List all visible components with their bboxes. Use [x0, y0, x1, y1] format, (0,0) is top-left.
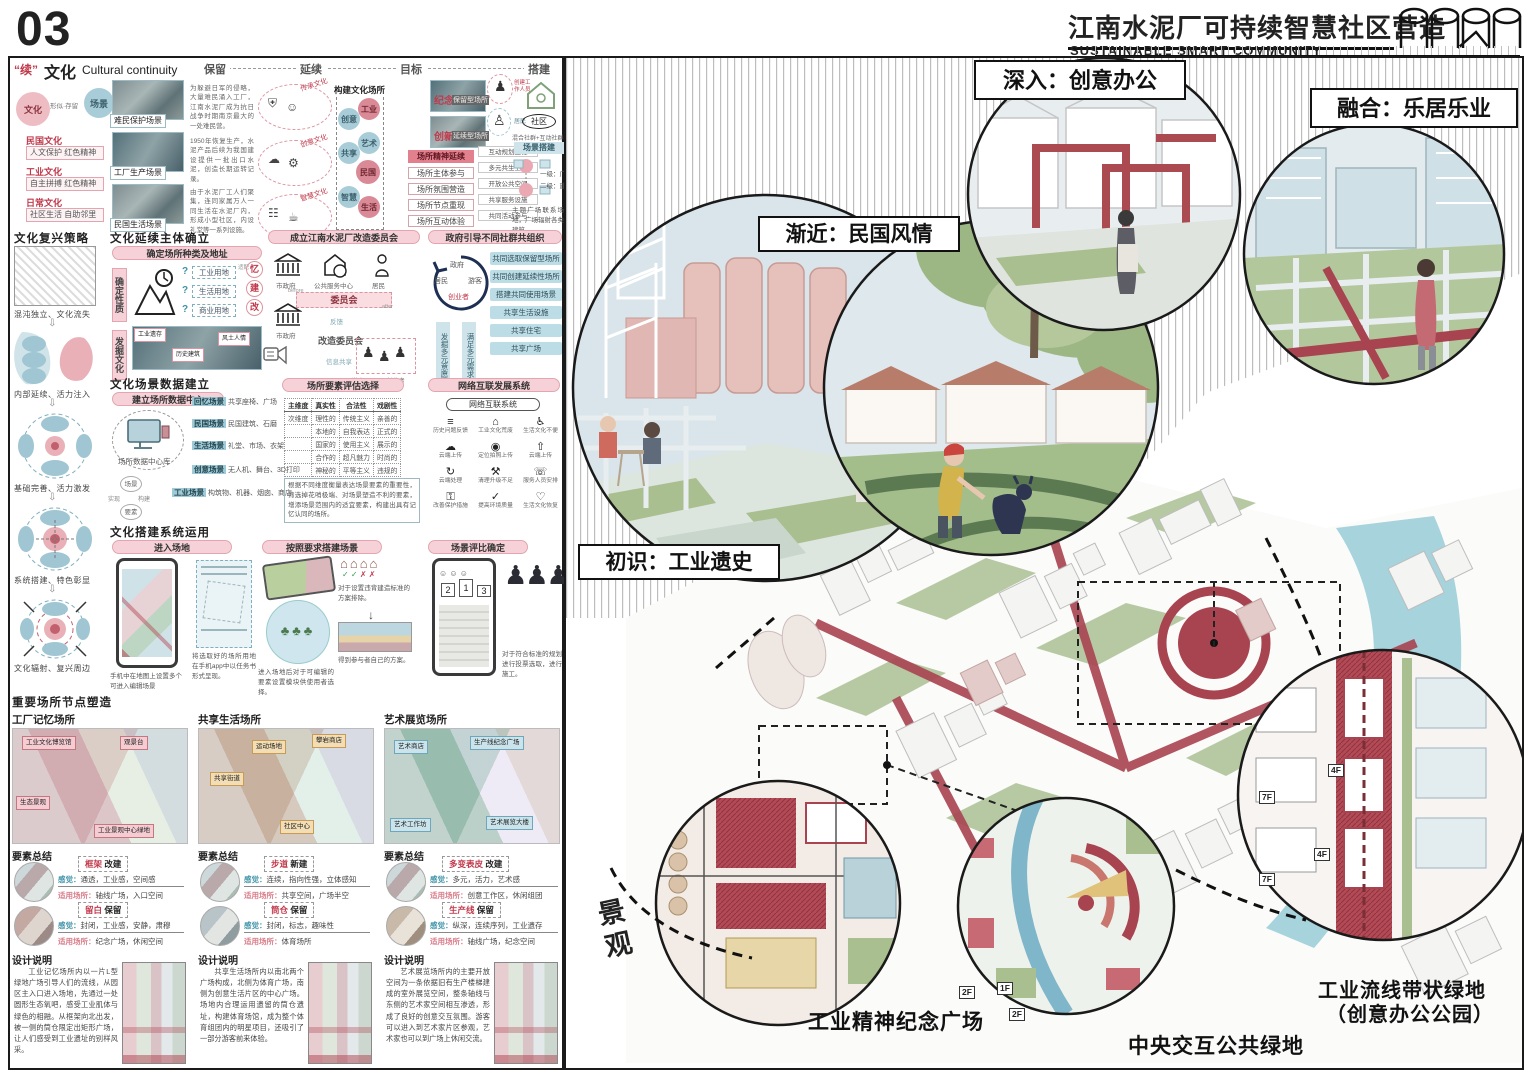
- innovate-tag: 创新: [434, 128, 454, 143]
- net-item-10: ⚿改善保护措施: [428, 491, 473, 516]
- photo-factory-label: 工厂生产场景: [110, 166, 166, 180]
- eval-r3c2: 时尚的: [373, 451, 400, 464]
- scene-tag-4: 创意场景: [192, 465, 226, 474]
- place-circle-art: 艺术: [358, 132, 380, 154]
- cloud-process-icon: ↻: [428, 466, 473, 478]
- place-circle-minguo: 民国: [356, 160, 380, 184]
- eval-r4c0: 神秘的: [312, 464, 339, 477]
- share-label: 信息共享: [326, 356, 352, 366]
- subject-v1: 确定性质: [112, 268, 127, 322]
- eval-h3: 戏剧性: [373, 399, 400, 412]
- place-circle-smart: 智慧: [338, 186, 360, 208]
- datacenter-label: 场所数据中心库: [118, 456, 171, 467]
- eval-sub: 次维度: [285, 412, 312, 425]
- buildsys-pill-2: 按照要求搭建场景: [262, 540, 382, 554]
- use-val: 轴线广场，入口空间: [96, 891, 164, 900]
- col3-rowB-feel: 感觉：纵深，连续序列，工业遗存: [430, 920, 558, 933]
- col1-title: 工厂记忆场所: [12, 712, 75, 727]
- photo-factory-note: 1950年恢复生产，水泥产品后续为我国建设提供一批出口水泥，创造长期运转记录。: [190, 137, 254, 184]
- org-box-4: 共享生活设施: [490, 306, 562, 319]
- dig-label-2: 历史建筑: [172, 348, 204, 362]
- net-item-4-label: 云端上传: [428, 453, 473, 459]
- committee-pill: 成立江南水泥厂改造委员会: [268, 230, 420, 244]
- scene-val-5: 构筑物、机器、烟囱、商店: [208, 490, 292, 497]
- community-house-icon: [524, 78, 558, 110]
- label-linear-green-2: （创意办公公园）: [1326, 998, 1494, 1027]
- lock-icon: ⚿: [428, 491, 473, 503]
- buildsys-cap-5: 得到参与者自己的方案。: [338, 656, 412, 666]
- net-item-11: ✓提高环境质量: [473, 491, 518, 516]
- house-options-icons: ⌂⌂⌂⌂: [340, 556, 379, 571]
- buildsys-cap-6: 对于符合标准的规划进行投票选取，进行施工。: [502, 650, 562, 679]
- land-q-1: ?: [182, 266, 188, 277]
- heart-icon: ♡: [518, 491, 563, 503]
- net-item-6-label: 云端上传: [518, 453, 563, 459]
- group-person-icon-1: ♟: [362, 344, 375, 361]
- nodes-title: 重要场所节点塑造: [12, 694, 112, 710]
- net-item-2: ⌂工业文化荒废: [473, 416, 518, 441]
- revive-title: 文化复兴策略: [14, 230, 89, 246]
- scene-build-title: 场景搭建: [514, 142, 564, 154]
- eval-r0c1: 传统主义: [339, 412, 373, 425]
- section1-title: 文化: [44, 59, 76, 83]
- megaphone-icon: [262, 344, 288, 366]
- net-pill: 网络互联发展系统: [428, 378, 560, 392]
- col1-label-4: 工业景观中心绿地: [94, 824, 154, 838]
- upload-arrow-icon: ⇧: [518, 441, 563, 453]
- factory-icon: ⌂: [473, 416, 518, 428]
- innovate-text: 延续型场所: [452, 131, 489, 141]
- col1-design-title: 设计说明: [12, 952, 52, 967]
- buildsys-cap-1: 手机中在地图上设置多个可进入编辑场景: [110, 672, 182, 692]
- culture-link-label: 形似·存留: [50, 100, 78, 110]
- use-key: 适用场所：: [244, 937, 282, 946]
- scene-tag-2: 民国场景: [192, 419, 226, 428]
- org-box-6: 共享广场: [490, 342, 562, 355]
- down-arrow-icon-5: ↓: [368, 608, 374, 622]
- subject-pill: 确定场所种类及地址: [112, 246, 262, 260]
- presentation-board: 03 江南水泥厂可持续智慧社区营造 SUSTAINABLE SMART COMM…: [0, 0, 1531, 1077]
- land-2: 生活用地: [192, 285, 236, 298]
- scene-item-3: 生活场景 礼堂、市场、衣架: [192, 440, 284, 451]
- col1-plan-thumb: [122, 962, 186, 1064]
- net-item-3-label: 生活文化不便: [518, 428, 563, 434]
- down-arrow-icon-1: ⇩: [48, 318, 56, 329]
- section1-subtitle: Cultural continuity: [82, 63, 177, 77]
- use-val: 创意工作区，休闲组团: [468, 891, 543, 900]
- floor-tag-3: 4F: [1314, 848, 1330, 861]
- col1-label-2: 观景台: [120, 736, 148, 750]
- buildsys-cap-2: 将选取好的场所用地在手机app中以任务书形式呈现。: [192, 652, 256, 681]
- photo-refugee-note: 为躲避日军的侵略，大量难民涌入工厂，江南水泥厂成为抗日战争时期南京最大的一处难民…: [190, 84, 254, 131]
- col2-rowB-use: 适用场所：体育场所: [244, 936, 370, 948]
- place-circle-creative: 创意: [338, 108, 360, 130]
- rank-3: 3: [477, 585, 491, 597]
- col2-label-1: 运动场地: [252, 740, 286, 754]
- floor-tag-5: 2F: [959, 986, 975, 999]
- resident-icon: [374, 254, 390, 278]
- wheelchair-icon: ♿: [518, 416, 563, 428]
- phone-map-screen: [122, 569, 172, 657]
- net-item-8-label: 清理升级不足: [473, 478, 518, 484]
- land-q-2: ?: [182, 285, 188, 296]
- resident-person-icon: ♙: [493, 112, 506, 129]
- land-3: 商业用地: [192, 304, 236, 317]
- col3-plan-thumb: [494, 962, 558, 1064]
- check-cross-row: ✓ ✓ ✗ ✗: [342, 570, 376, 579]
- chain-2: 场所氛围营造: [408, 183, 474, 195]
- use-val: 体育场所: [282, 937, 312, 946]
- editable-elements-circle: ♣♣♣: [266, 600, 330, 664]
- bubble-construct: 构建: [138, 494, 150, 503]
- callout-living-working: 融合：乐居乐业: [1310, 88, 1518, 128]
- chain-1: 场所主体参与: [408, 167, 474, 179]
- col2-rowB-badge: 筒仓 保留: [264, 902, 314, 918]
- use-val: 轴线广场，纪念空间: [468, 937, 536, 946]
- vote-plan-thumb: [439, 605, 489, 667]
- net-item-1-label: 历史问题反馈: [428, 428, 473, 434]
- place-circle-share: 共享: [338, 142, 360, 164]
- col3-label-3: 艺术工作坊: [390, 818, 431, 832]
- machine-icon: ⚙: [288, 156, 299, 170]
- label-central-green: 中央交互公共绿地: [1128, 1030, 1304, 1060]
- monitor-icon: [126, 418, 170, 452]
- org-box-3: 搭建共同使用场景: [490, 288, 562, 301]
- org-pill: 政府引导不同社群共组织: [428, 230, 562, 244]
- net-item-11-label: 提高环境质量: [473, 503, 518, 509]
- eval-r2c2: 展示的: [373, 438, 400, 451]
- place-circle-life: 生活: [358, 196, 380, 218]
- rank-1: 1: [459, 579, 473, 597]
- chain-3: 场所节点重现: [408, 199, 474, 211]
- feel-val: 纵深，连续序列，工业遗存: [453, 921, 543, 930]
- col2-rowA-use: 适用场所：共享空间，广场半空: [244, 890, 370, 902]
- culture-type-1-items: 人文保护 红色精神: [26, 146, 104, 160]
- badge-action: 改建: [104, 859, 121, 869]
- feel-key: 感觉：: [430, 921, 453, 930]
- org-box-5: 共享住宅: [490, 324, 562, 337]
- eval-r4c2: 违规的: [373, 464, 400, 477]
- badge-action: 保留: [104, 905, 121, 915]
- revive-diagram-4: [14, 506, 96, 572]
- data-title: 文化场景数据建立: [110, 376, 210, 392]
- net-item-3: ♿生活文化不便: [518, 416, 563, 441]
- col3-rowB-thumb: [386, 906, 426, 946]
- robot-icon: ☷: [268, 206, 279, 220]
- culture-type-3-items: 社区生活 自助邻里: [26, 208, 104, 222]
- spirit-box: 场所精神延续: [408, 150, 474, 163]
- idea-icon: ☁: [268, 152, 280, 166]
- stage-continue: 延续: [296, 61, 326, 77]
- label-memorial-plaza: 工业精神纪念广场: [808, 1006, 984, 1036]
- chain-4: 场所互动体验: [408, 215, 474, 227]
- eval-r2c0: 国家的: [312, 438, 339, 451]
- scene-val-3: 礼堂、市场、衣架: [228, 443, 284, 450]
- org-entrepreneur: 创业者: [448, 292, 469, 302]
- scene-val-2: 民国建筑、石磨: [228, 421, 277, 428]
- shield-icon: ⛨: [268, 96, 277, 111]
- org-box-1: 共同选取保留型场所: [490, 252, 562, 265]
- scene-item-1: 回忆场景 共享座椅、广场: [192, 396, 277, 407]
- buildsys-pill-1: 进入场地: [112, 540, 232, 554]
- build-places-title: 构建文化场所: [332, 84, 387, 96]
- net-grid: ≡历史问题反馈 ⌂工业文化荒废 ♿生活文化不便 ☁云端上传 ◉定位拍照上传 ⇧云…: [428, 416, 564, 516]
- revive-diagram-3: [14, 412, 96, 480]
- org-tourist: 游客: [468, 276, 482, 286]
- use-key: 适用场所：: [430, 891, 468, 900]
- net-item-12-label: 生活文化恢复: [518, 503, 563, 509]
- committee-resident-label: 居民: [372, 280, 385, 290]
- feel-key: 感觉：: [244, 875, 267, 884]
- feel-val: 连续，指向性强，立体感知: [267, 875, 357, 884]
- culture-type-2-items: 自主拼搏 红色精神: [26, 177, 104, 191]
- land-r-3: 改: [246, 299, 263, 316]
- council-box: 委员会: [296, 292, 392, 308]
- col1-rowB-use: 适用场所：纪念广场，休闲空间: [58, 936, 184, 948]
- col2-rowB-feel: 感觉：封闭，标志，趣味性: [244, 920, 370, 933]
- col3-rowA-feel: 感觉：多元，活力，艺术感: [430, 874, 558, 887]
- col3-label-4: 艺术展览大楼: [486, 816, 533, 830]
- badge-keyword: 框架: [85, 859, 102, 869]
- feel-val: 封闭，工业感，安静，肃穆: [81, 921, 171, 930]
- col1-design-text: 工业记忆场所内以一片L型绿地广场引导人们的流线，从园区主入口进入场地，先通过一处…: [14, 966, 118, 1055]
- org-gov: 政府: [450, 260, 464, 270]
- callout-minguo-flavor: 渐近：民国风情: [758, 216, 960, 252]
- bubble-element: 要素: [120, 504, 142, 520]
- col1-label-3: 生态景观: [16, 796, 50, 810]
- col1-rowA-badge: 框架 改建: [78, 856, 128, 872]
- col2-design-text: 共享生活场所内以南北两个广场构成，北侧为体育广场，南侧为创意生活片区的中心广场。…: [200, 966, 304, 1044]
- street-scene-thumb: [338, 622, 412, 652]
- badge-keyword: 生产线: [449, 905, 475, 915]
- use-key: 适用场所：: [430, 937, 468, 946]
- scene-val-1: 共享座椅、广场: [228, 399, 277, 406]
- net-box: 网络互联系统: [446, 398, 540, 411]
- history-list-icon: ≡: [428, 416, 473, 428]
- stage-keep: 保留: [200, 61, 230, 77]
- feel-key: 感觉：: [58, 921, 81, 930]
- community-oval: 社区: [522, 114, 556, 129]
- service-center-label: 公共服务中心: [314, 280, 353, 290]
- worker-icon: ☺: [286, 100, 298, 114]
- eval-r1c2: 正式的: [373, 425, 400, 438]
- culture-node: 文化: [16, 92, 50, 126]
- shovel-icon: ⚒: [473, 466, 518, 478]
- revive-step-5: 文化辐射、复兴周边: [14, 663, 91, 674]
- eval-caption: 根据不同维度衡量表达场景要素的重要性，筛选掉花哨极端、对场景塑造不利的要素，增添…: [284, 478, 420, 523]
- down-arrow-icon-4: ⇩: [48, 584, 56, 595]
- group-person-icon-3: ♟: [394, 344, 407, 361]
- cement-silos-logo-icon: [1398, 6, 1522, 50]
- scene-tag-3: 生活场景: [192, 441, 226, 450]
- net-item-7-label: 云端处理: [428, 478, 473, 484]
- eval-r1c1: 自我表达: [339, 425, 373, 438]
- net-item-7: ↻云端处理: [428, 466, 473, 491]
- after-label: after: [382, 304, 393, 310]
- revive-diagram-1: [14, 246, 96, 306]
- net-item-5: ◉定位拍照上传: [473, 441, 518, 466]
- net-item-9-label: 服务人员安排: [518, 478, 563, 484]
- badge-action: 保留: [477, 905, 494, 915]
- net-item-5-label: 定位拍照上传: [473, 453, 518, 459]
- memory-text: 保留型场所: [452, 95, 489, 105]
- col2-label-2: 攀岩商店: [312, 734, 346, 748]
- group-person-icon-2: ♟: [378, 348, 391, 365]
- badge-keyword: 筒仓: [271, 905, 288, 915]
- feedback-label: 反馈: [330, 316, 343, 326]
- bubble-realize: 实现: [108, 494, 120, 503]
- revive-diagram-2: [14, 330, 96, 386]
- bubble-scene: 场景: [120, 476, 142, 492]
- use-key: 适用场所：: [244, 891, 282, 900]
- eval-r0c0: 理性的: [312, 412, 339, 425]
- net-item-8: ⚒清理升级不足: [473, 466, 518, 491]
- buildsys-cap-3: 进入场地后对于可编辑的要素设置模块供使用者选择。: [258, 668, 334, 697]
- eval-h1: 真实性: [312, 399, 339, 412]
- col2-design-title: 设计说明: [198, 952, 238, 967]
- feel-key: 感觉：: [430, 875, 453, 884]
- col2-plan-thumb: [308, 962, 372, 1064]
- net-item-1: ≡历史问题反馈: [428, 416, 473, 441]
- dig-label-3: 风土人情: [218, 332, 250, 346]
- land-r-1: 忆: [246, 261, 263, 278]
- land-r-2: 建: [246, 280, 263, 297]
- stage-build: 搭建: [524, 61, 554, 77]
- col3-rowA-use: 适用场所：创意工作区，休闲组团: [430, 890, 558, 902]
- badge-keyword: 留白: [85, 905, 102, 915]
- eval-table: 主维度 真实性 合法性 戏剧性 次维度 理性的 传统主义 亲善的 本地的 自我表…: [284, 398, 401, 477]
- use-key: 适用场所：: [58, 937, 96, 946]
- stage-goal: 目标: [396, 61, 426, 77]
- headset-icon: ☏: [518, 466, 563, 478]
- section1-tag: “续”: [14, 61, 38, 78]
- net-item-9: ☏服务人员安排: [518, 466, 563, 491]
- net-item-6: ⇧云端上传: [518, 441, 563, 466]
- use-key: 适用场所：: [58, 891, 96, 900]
- rank-2: 2: [441, 583, 455, 597]
- buildsys-pill-3: 场景评比确定: [428, 540, 528, 554]
- memory-tag: 纪念: [434, 92, 454, 107]
- subject-v2: 发掘文化: [112, 330, 127, 380]
- phone-vote: ☺ ☺ ☺ 2 1 3: [432, 558, 496, 676]
- floor-tag-1: 4F: [1328, 764, 1344, 777]
- photo-life-note: 由于水泥厂工人们聚集，连同家属万人一同生活在水泥厂内，形成小型社区，内设礼堂等一…: [190, 188, 254, 235]
- col2-label-4: 社区中心: [280, 820, 314, 834]
- photo-refugee-label: 难民保护场景: [110, 114, 166, 128]
- col3-title: 艺术展览场所: [384, 712, 447, 727]
- badge-action: 保留: [290, 905, 307, 915]
- before-label: before: [288, 288, 304, 294]
- down-arrow-icon-2: ⇩: [48, 398, 56, 409]
- staff-person-icon: ♟: [494, 78, 507, 95]
- subject-title: 文化延续主体确立: [110, 230, 210, 246]
- dig-label-1: 工业遗存: [134, 328, 166, 342]
- col1-rowB-feel: 感觉：封闭，工业感，安静，肃穆: [58, 920, 184, 933]
- col3-summary-title: 要素总结: [384, 848, 424, 863]
- revive-diagram-5: [14, 598, 96, 660]
- gov-label-2: 市政府: [276, 330, 296, 340]
- floor-tag-6: 1F: [997, 982, 1013, 995]
- badge-keyword: 多变表皮: [449, 859, 483, 869]
- col1-summary-title: 要素总结: [12, 848, 52, 863]
- scene-item-5: 工业场景 构筑物、机器、烟囱、商店: [172, 487, 292, 498]
- badge-keyword: 步道: [271, 859, 288, 869]
- feel-val: 多元，活力，艺术感: [453, 875, 521, 884]
- scene-tag-1: 回忆场景: [192, 397, 226, 406]
- buildsys-cap-4: 对于设置违背建造标准的方案排除。: [338, 584, 410, 604]
- col2-rowB-thumb: [200, 906, 240, 946]
- col1-rowB-thumb: [14, 906, 54, 946]
- use-val: 共享空间，广场半空: [282, 891, 350, 900]
- eval-r1c0: 本地的: [312, 425, 339, 438]
- feel-key: 感觉：: [58, 875, 81, 884]
- callout-creative-office: 深入：创意办公: [974, 60, 1186, 100]
- col3-label-2: 生产线纪念广场: [470, 736, 524, 750]
- page-number: 03: [16, 2, 71, 57]
- eval-r2c1: 使用主义: [339, 438, 373, 451]
- cloud-upload-icon: ☁: [428, 441, 473, 453]
- quality-icon: ✓: [473, 491, 518, 503]
- eval-h2: 合法性: [339, 399, 373, 412]
- community-caption: 混合社群+互动社群: [512, 133, 564, 142]
- eval-r3c1: 超凡魅力: [339, 451, 373, 464]
- eval-r3c0: 合作的: [312, 451, 339, 464]
- net-item-4: ☁云端上传: [428, 441, 473, 466]
- gov-bank-icon-2: [274, 302, 302, 328]
- org-resident: 居民: [434, 276, 448, 286]
- scene-item-2: 民国场景 民国建筑、石磨: [192, 418, 277, 429]
- net-item-12: ♡生活文化恢复: [518, 491, 563, 516]
- service-center-icon: [322, 253, 348, 278]
- net-item-10-label: 改善保护措施: [428, 503, 473, 509]
- col2-title: 共享生活场所: [198, 712, 261, 727]
- col1-rowB-badge: 留白 保留: [78, 902, 128, 918]
- col1-label-1: 工业文化博览馆: [22, 736, 76, 750]
- col3-label-1: 艺术商店: [394, 740, 428, 754]
- stage-connector: [218, 68, 536, 69]
- feel-key: 感觉：: [244, 921, 267, 930]
- land-1: 工业用地: [192, 266, 236, 279]
- eval-pill: 场所要素评估选择: [282, 378, 404, 392]
- vote-faces: ☺ ☺ ☺: [439, 569, 468, 578]
- gov-bank-icon: [274, 252, 302, 278]
- floor-tag-4: 7F: [1259, 873, 1275, 886]
- col1-rowA-use: 适用场所：轴线广场，入口空间: [58, 890, 184, 902]
- feel-val: 封闭，标志，趣味性: [267, 921, 335, 930]
- col3-rowB-badge: 生产线 保留: [442, 902, 501, 918]
- col3-rowB-use: 适用场所：轴线广场，纪念空间: [430, 936, 558, 948]
- scene-tag-5: 工业场景: [172, 488, 206, 497]
- eval-r4c1: 平等主义: [339, 464, 373, 477]
- col2-rowA-feel: 感觉：连续，指向性强，立体感知: [244, 874, 370, 887]
- col1-rowA-thumb: [14, 862, 54, 902]
- col2-rowA-badge: 步道 新建: [264, 856, 314, 872]
- col3-design-text: 艺术展览场所内的主要开放空间为一条依据旧有生产楼梯建成的室外展览空间，整条轴线与…: [386, 966, 490, 1044]
- col2-summary-title: 要素总结: [198, 848, 238, 863]
- coffee-icon: ☕: [288, 210, 299, 224]
- use-val: 纪念广场，休闲空间: [96, 937, 164, 946]
- col3-rowA-badge: 多变表皮 改建: [442, 856, 509, 872]
- buildsys-title: 文化搭建系统运用: [110, 524, 210, 540]
- col1-rowA-feel: 感觉：通透，工业感，空间感: [58, 874, 184, 887]
- eval-r0c2: 亲善的: [373, 412, 400, 425]
- net-item-2-label: 工业文化荒废: [473, 428, 518, 434]
- col3-design-title: 设计说明: [384, 952, 424, 967]
- col2-label-3: 共享街道: [210, 772, 244, 786]
- mountain-icon: [134, 268, 176, 318]
- org-box-2: 共同创建延续性场所: [490, 270, 562, 283]
- badge-action: 新建: [290, 859, 307, 869]
